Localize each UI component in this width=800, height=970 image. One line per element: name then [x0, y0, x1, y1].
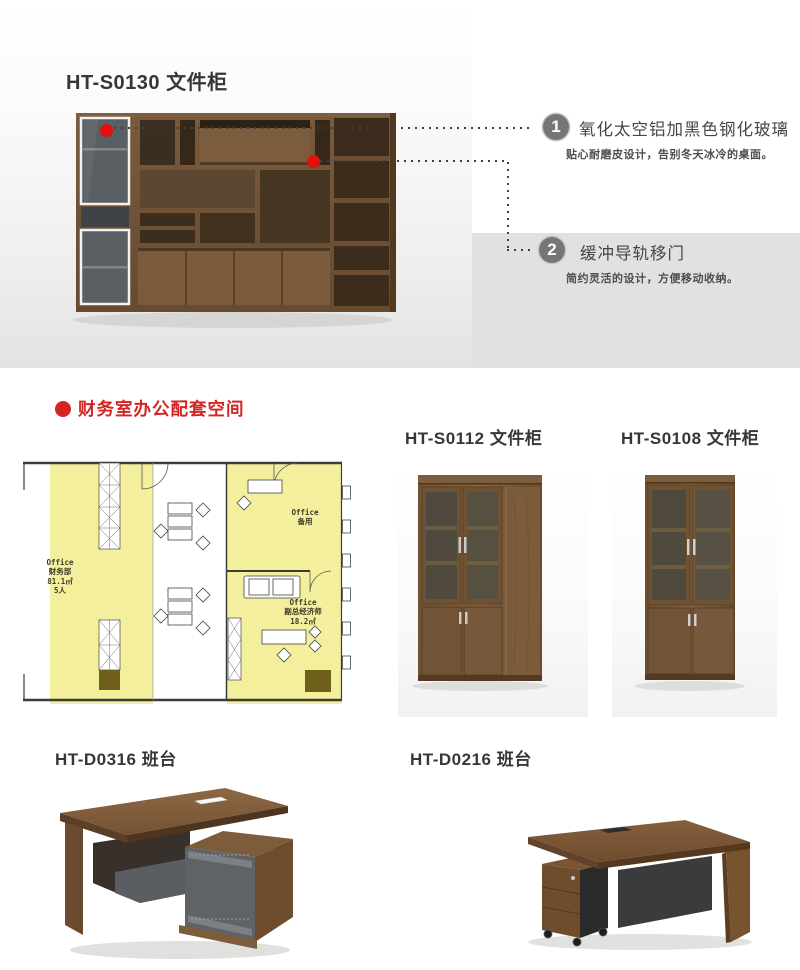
callout-2-title: 缓冲导轨移门 — [580, 240, 685, 264]
hero-product-title: HT-S0130 文件柜 — [66, 66, 228, 95]
cabinet-ht-s0130-photo — [73, 110, 403, 335]
cabinet-s0108-title: HT-S0108 文件柜 — [621, 424, 759, 449]
cabinet-s0112-title: HT-S0112 文件柜 — [405, 424, 542, 449]
desk-d0216-title: HT-D0216 班台 — [410, 745, 532, 770]
cabinet-ht-s0112-photo — [398, 462, 588, 717]
leader-line-2c — [507, 249, 535, 251]
desk-d0316-title: HT-D0316 班台 — [55, 745, 177, 770]
space-section-heading: 财务室办公配套空间 — [55, 396, 245, 421]
callout-1-number: 1 — [543, 114, 569, 140]
callout-2-number: 2 — [539, 237, 565, 263]
leader-line-2a — [320, 160, 508, 162]
desk-ht-d0216-photo — [500, 792, 770, 957]
callout-1-desc: 贴心耐磨皮设计，告别冬天冰冷的桌面。 — [566, 146, 773, 162]
hotspot-dot-1 — [100, 124, 113, 137]
space-heading-text: 财务室办公配套空间 — [78, 396, 245, 421]
callout-1-title: 氧化太空铝加黑色钢化玻璃 — [579, 116, 789, 140]
callout-2-desc: 简约灵活的设计，方便移动收纳。 — [566, 270, 739, 286]
hotspot-dot-2 — [307, 155, 320, 168]
red-bullet-icon — [55, 401, 71, 417]
desk-ht-d0316-photo — [45, 775, 315, 970]
plan-label-finance-office: Office 财务部 81.1㎡ 5人 — [30, 558, 90, 596]
plan-label-economist-office: Office 副总经济师 18.2㎡ — [263, 598, 343, 626]
cabinet-ht-s0108-photo — [612, 462, 777, 717]
floor-plan: Office 财务部 81.1㎡ 5人 Office 备用 Office 副总经… — [22, 458, 352, 704]
product-detail-page: { "hero": { "title": "HT-S0130 文件柜", "ca… — [0, 0, 800, 970]
leader-line-2b — [507, 162, 509, 250]
plan-label-spare-office: Office 备用 — [265, 508, 345, 527]
leader-line-1 — [114, 127, 532, 129]
